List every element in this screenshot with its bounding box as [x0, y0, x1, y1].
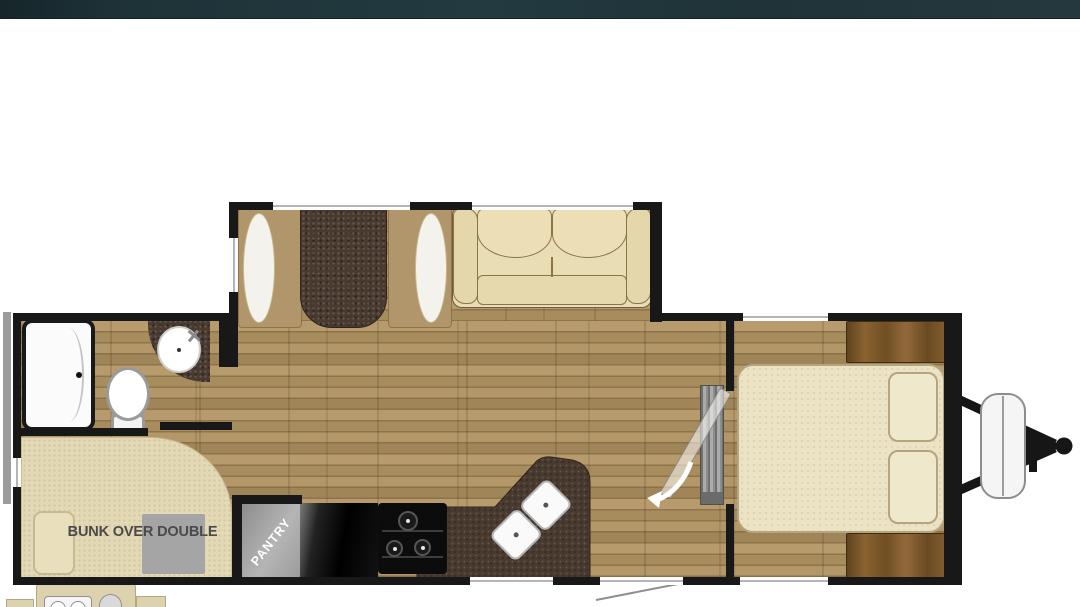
- stove-cooktop: [378, 503, 447, 574]
- window-slideout-1: [273, 202, 410, 210]
- window-rear: [13, 458, 21, 487]
- bathroom-sink: [157, 326, 201, 373]
- wall-bedroom-partition-lower: [726, 504, 734, 585]
- window-slideout-2: [472, 202, 633, 210]
- sofa: [452, 207, 652, 308]
- window-slideout-left: [229, 238, 238, 292]
- dinette-table: [300, 205, 387, 328]
- wall-top-front: [828, 313, 948, 321]
- sofa-seat: [477, 275, 627, 305]
- toilet: [106, 367, 150, 421]
- wall-top-left: [13, 313, 238, 321]
- refrigerator: [300, 503, 378, 578]
- bedroom-cabinet-top: [846, 321, 946, 363]
- dinette-seatback-left: [243, 213, 275, 323]
- bed-pillow-top: [888, 372, 938, 442]
- wall-pantry-cap: [232, 495, 302, 504]
- window-bottom-1: [470, 577, 553, 585]
- wall-bedroom-partition-upper: [726, 313, 734, 391]
- bedroom-cabinet-bottom: [846, 533, 946, 579]
- burner-icon: [398, 511, 418, 531]
- window-bottom-2: [740, 577, 828, 585]
- wall-front: [944, 313, 962, 585]
- top-banner: [0, 0, 1080, 19]
- rear-bumper: [3, 312, 11, 504]
- wall-rear-upper: [13, 313, 21, 458]
- sink-drain-icon: [177, 348, 181, 352]
- shower-handle: [76, 372, 82, 378]
- wall-bathroom-a: [21, 428, 148, 436]
- shower: [22, 319, 95, 431]
- sofa-armrest: [453, 208, 478, 304]
- wall-bottom-d: [828, 577, 948, 585]
- trailer-tongue: [955, 378, 1080, 518]
- door-swing-arrow: [645, 458, 697, 510]
- wall-slideout-top-a: [229, 202, 273, 210]
- wall-slideout-top-b: [410, 202, 472, 210]
- wall-slideout-right: [650, 202, 662, 322]
- door-track-cap: [701, 492, 723, 504]
- outdoor-panel-right: [136, 596, 166, 607]
- hitch-coupler: [1056, 438, 1073, 455]
- bunk-label: BUNK OVER DOUBLE: [62, 523, 222, 540]
- sofa-armrest: [626, 208, 651, 304]
- outdoor-panel-left: [6, 599, 34, 607]
- burner-icon: [414, 539, 431, 556]
- sofa-back-cushion: [477, 208, 552, 258]
- sofa-seam: [551, 257, 553, 277]
- dinette-seatback-right: [415, 213, 447, 323]
- wall-bottom-b: [553, 577, 600, 585]
- pantry-label: PANTRY: [248, 515, 295, 569]
- propane-tanks: [981, 394, 1025, 498]
- wall-pantry-left: [232, 503, 242, 585]
- wall-bath-stub: [219, 321, 238, 367]
- wall-rear-lower: [13, 487, 21, 585]
- window-bedroom-top: [743, 313, 828, 321]
- bed-pillow-bottom: [888, 450, 938, 524]
- pantry-cabinet: PANTRY: [242, 503, 300, 583]
- burner-icon: [386, 540, 403, 557]
- stove-grate: [382, 530, 443, 532]
- bunk-pillow: [33, 511, 75, 575]
- outdoor-kitchen: [0, 583, 400, 607]
- floorplan-image: BUNK OVER DOUBLE PANTRY: [0, 0, 1080, 607]
- entry-door-opening: [600, 577, 683, 585]
- wall-bathroom-b: [160, 422, 232, 430]
